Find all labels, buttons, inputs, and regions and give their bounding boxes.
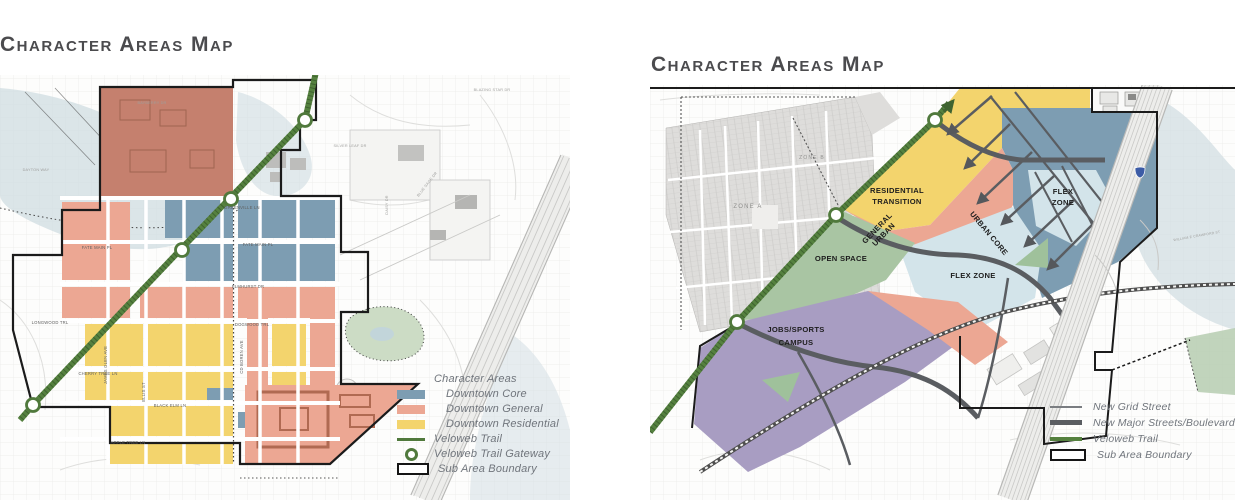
left-map-legend: Character Areas Downtown Core Downtown G… bbox=[397, 372, 559, 477]
residential-transition-label: TRANSITION bbox=[872, 197, 921, 206]
legend-label: New Major Streets/Boulevards bbox=[1093, 417, 1235, 429]
flex-zone-label: ZONE bbox=[1052, 198, 1074, 207]
new-major-streets-swatch-icon bbox=[1050, 420, 1082, 425]
downtown-general-swatch-icon bbox=[397, 405, 425, 414]
legend-item-veloweb-trail: Veloweb Trail bbox=[1050, 431, 1235, 446]
street-label: BLACK ELM LN bbox=[154, 403, 186, 408]
legend-label: Downtown Core bbox=[434, 388, 527, 400]
street-label: GREENVILLE LN bbox=[224, 205, 259, 210]
street-label: APPLE TREE LN bbox=[111, 440, 146, 445]
veloweb-trail-swatch-icon bbox=[397, 438, 425, 441]
legend-item-new-major-streets: New Major Streets/Boulevards bbox=[1050, 415, 1235, 430]
street-label: FATE MAIN PL bbox=[82, 245, 113, 250]
street-label: FATE MAIN PL bbox=[243, 242, 274, 247]
legend-item-sub-area-boundary: Sub Area Boundary bbox=[1050, 447, 1235, 462]
right-map-legend: New Grid Street New Major Streets/Boulev… bbox=[1050, 399, 1235, 463]
street-label: DAISY DR bbox=[385, 195, 389, 215]
street-label: DOGWOOD TRL bbox=[235, 322, 270, 327]
flex-zone-label: FLEX bbox=[1053, 187, 1074, 196]
legend-label: Veloweb Trail bbox=[1093, 433, 1158, 445]
street-label: DAYTON WAY bbox=[23, 168, 50, 172]
downtown-core-swatch-icon bbox=[397, 390, 425, 399]
legend-label: Downtown General bbox=[434, 403, 543, 415]
jobs-sports-campus-label: JOBS/SPORTS bbox=[767, 325, 824, 334]
legend-label: New Grid Street bbox=[1093, 401, 1171, 413]
street-label: ELMHURST DR bbox=[232, 284, 264, 289]
legend-label: Sub Area Boundary bbox=[438, 463, 537, 475]
legend-item-veloweb-gateway: Veloweb Trail Gateway bbox=[397, 447, 559, 461]
street-label: SILVER LEAF DR bbox=[333, 144, 366, 148]
street-label: BAYBERRY DR bbox=[138, 101, 167, 105]
legend-item-new-grid-street: New Grid Street bbox=[1050, 399, 1235, 414]
legend-header: Character Areas bbox=[434, 373, 517, 385]
legend-header-row: Character Areas bbox=[397, 372, 559, 386]
legend-item-veloweb-trail: Veloweb Trail bbox=[397, 432, 559, 446]
legend-label: Sub Area Boundary bbox=[1097, 449, 1192, 461]
zone-b-label: ZONE B bbox=[799, 155, 825, 161]
new-grid-street-swatch-icon bbox=[1050, 406, 1082, 408]
right-map-title: Character Areas Map bbox=[651, 53, 885, 77]
sub-area-boundary-swatch-icon bbox=[397, 463, 429, 475]
street-label: CD BOREN AVE bbox=[239, 340, 244, 374]
left-map-title: Character Areas Map bbox=[0, 33, 234, 57]
street-label: CHERRY TREE LN bbox=[78, 371, 117, 376]
legend-item-downtown-core: Downtown Core bbox=[397, 387, 559, 401]
street-label: ELLIS ST bbox=[141, 382, 146, 402]
legend-label: Veloweb Trail Gateway bbox=[434, 448, 550, 460]
open-space-label: OPEN SPACE bbox=[815, 254, 867, 263]
page: Character Areas Map Character Areas Map bbox=[0, 0, 1235, 500]
legend-item-downtown-general: Downtown General bbox=[397, 402, 559, 416]
street-label: BLAZING STAR DR bbox=[474, 88, 511, 92]
legend-spacer bbox=[397, 375, 425, 384]
street-label: LONGWOOD TRL bbox=[32, 320, 69, 325]
legend-label: Downtown Residential bbox=[434, 418, 559, 430]
legend-item-downtown-residential: Downtown Residential bbox=[397, 417, 559, 431]
veloweb-trail-swatch-icon bbox=[1050, 437, 1082, 441]
residential-transition-label: RESIDENTIAL bbox=[870, 186, 924, 195]
zone-a-label: ZONE A bbox=[733, 204, 762, 210]
legend-label: Veloweb Trail bbox=[434, 433, 502, 445]
legend-item-sub-area-boundary: Sub Area Boundary bbox=[397, 462, 559, 476]
veloweb-gateway-swatch-icon bbox=[397, 448, 425, 460]
jobs-sports-campus-label: CAMPUS bbox=[779, 338, 814, 347]
sub-area-boundary-swatch-icon bbox=[1050, 449, 1086, 461]
street-label: JAMES GLEN AVE bbox=[103, 346, 108, 384]
downtown-residential-swatch-icon bbox=[397, 420, 425, 429]
flex-zone-label: FLEX ZONE bbox=[950, 271, 995, 280]
